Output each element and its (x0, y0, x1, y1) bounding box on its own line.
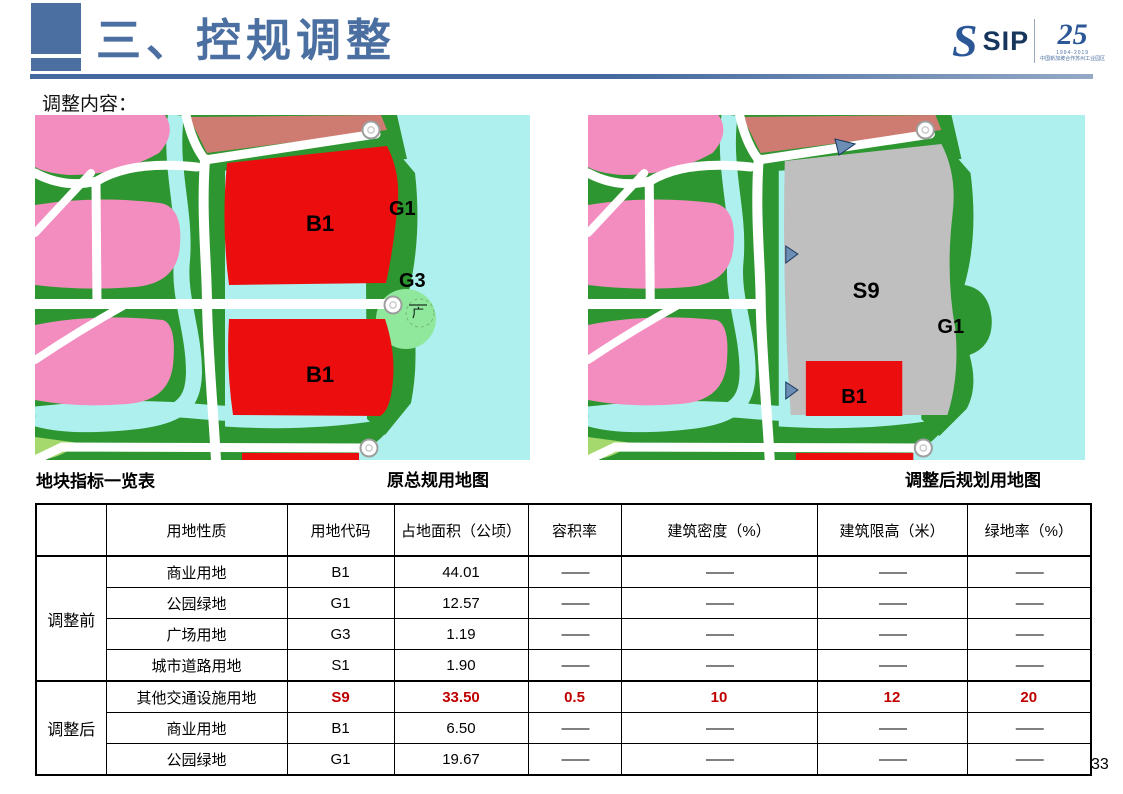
residential-parcel (35, 317, 174, 405)
header-far: 容积率 (528, 504, 621, 556)
table-row: 公园绿地 G1 19.67 —— —— —— —— (36, 744, 1091, 776)
table-row: 调整前 商业用地 B1 44.01 —— —— —— —— (36, 556, 1091, 588)
cell: —— (528, 588, 621, 619)
cell-highlight: 20 (967, 681, 1091, 713)
header-density: 建筑密度（%） (621, 504, 817, 556)
page-title: 三、控规调整 (96, 4, 396, 69)
cell: S1 (287, 650, 394, 682)
cell: —— (817, 588, 967, 619)
label-b1-small: B1 (841, 386, 867, 408)
label-s9: S9 (853, 278, 880, 303)
cell: 商业用地 (106, 556, 287, 588)
cell-highlight: 12 (817, 681, 967, 713)
label-g1: G1 (937, 316, 964, 338)
header-divider (30, 74, 1093, 79)
title-decoration-square (31, 3, 81, 54)
red-sliver-parcel (242, 453, 359, 460)
table-row: 调整后 其他交通设施用地 S9 33.50 0.5 10 12 20 (36, 681, 1091, 713)
cell: —— (621, 588, 817, 619)
cell: 公园绿地 (106, 588, 287, 619)
map-after-caption: 调整后规划用地图 (905, 466, 1041, 491)
logo-divider (1034, 19, 1035, 63)
cell: —— (621, 556, 817, 588)
cell: 公园绿地 (106, 744, 287, 776)
group-label-before: 调整前 (36, 556, 106, 681)
cell: B1 (287, 713, 394, 744)
cell: 广场用地 (106, 619, 287, 650)
cell: 1.19 (394, 619, 528, 650)
roundabout-icon (915, 440, 932, 457)
roundabout-icon (363, 122, 380, 139)
cell: —— (967, 650, 1091, 682)
cell: —— (528, 713, 621, 744)
cell: —— (621, 619, 817, 650)
cell-highlight: 0.5 (528, 681, 621, 713)
map-before-caption: 原总规用地图 (387, 466, 489, 491)
roundabout-icon (385, 297, 402, 314)
header-area: 占地面积（公顷） (394, 504, 528, 556)
cell: —— (817, 744, 967, 776)
cell: —— (817, 556, 967, 588)
table-title: 地块指标一览表 (36, 467, 155, 492)
anniversary-logo: 25 1994-2019 中国新加坡合作苏州工业园区 (1040, 20, 1105, 62)
group-label-after: 调整后 (36, 681, 106, 775)
page-number: 33 (1091, 756, 1109, 774)
sip-logo-text: SIP (983, 26, 1030, 57)
cell-highlight: S9 (287, 681, 394, 713)
title-decoration-bar (31, 58, 81, 71)
cell: 商业用地 (106, 713, 287, 744)
slide: 三、控规调整 S SIP 25 1994-2019 中国新加坡合作苏州工业园区 … (0, 0, 1123, 794)
cell: —— (621, 713, 817, 744)
anniversary-25-icon: 25 (1058, 20, 1088, 50)
cell: —— (967, 744, 1091, 776)
red-sliver-parcel (796, 453, 913, 460)
cell-highlight: 10 (621, 681, 817, 713)
header-height-limit: 建筑限高（米） (817, 504, 967, 556)
table-row: 商业用地 B1 6.50 —— —— —— —— (36, 713, 1091, 744)
cell: —— (967, 619, 1091, 650)
cell: 其他交通设施用地 (106, 681, 287, 713)
cell: 6.50 (394, 713, 528, 744)
cell: —— (528, 619, 621, 650)
label-b1-top: B1 (306, 211, 334, 236)
cell: G3 (287, 619, 394, 650)
cell: —— (528, 556, 621, 588)
cell: 12.57 (394, 588, 528, 619)
parcel-indicator-table: 用地性质 用地代码 占地面积（公顷） 容积率 建筑密度（%） 建筑限高（米） 绿… (35, 503, 1092, 776)
label-g1: G1 (389, 198, 416, 220)
cell: 44.01 (394, 556, 528, 588)
cell: —— (817, 713, 967, 744)
label-plaza: 广 (412, 306, 424, 320)
cell: 1.90 (394, 650, 528, 682)
cell: —— (621, 650, 817, 682)
cell: —— (528, 650, 621, 682)
header-land-use: 用地性质 (106, 504, 287, 556)
cell: B1 (287, 556, 394, 588)
cell: —— (967, 713, 1091, 744)
cell: 19.67 (394, 744, 528, 776)
header-blank (36, 504, 106, 556)
land-use-map-before: B1 G1 G3 广 B1 (35, 115, 530, 460)
cell: —— (967, 588, 1091, 619)
table-row: 广场用地 G3 1.19 —— —— —— —— (36, 619, 1091, 650)
table-header-row: 用地性质 用地代码 占地面积（公顷） 容积率 建筑密度（%） 建筑限高（米） 绿… (36, 504, 1091, 556)
cell: G1 (287, 744, 394, 776)
table-row: 公园绿地 G1 12.57 —— —— —— —— (36, 588, 1091, 619)
header-land-code: 用地代码 (287, 504, 394, 556)
anniversary-caption: 中国新加坡合作苏州工业园区 (1040, 57, 1105, 62)
sip-logo-swoosh-icon: S (952, 20, 978, 61)
map-before-svg: B1 G1 G3 广 B1 (35, 115, 530, 460)
cell: —— (817, 619, 967, 650)
roundabout-icon (917, 122, 934, 139)
cell: —— (528, 744, 621, 776)
cell: G1 (287, 588, 394, 619)
sip-logo: S SIP 25 1994-2019 中国新加坡合作苏州工业园区 (952, 12, 1117, 70)
section-intro-label: 调整内容： (42, 89, 137, 116)
label-g3: G3 (399, 270, 426, 292)
header-green-rate: 绿地率（%） (967, 504, 1091, 556)
land-use-map-after: S9 G1 B1 (588, 115, 1085, 460)
cell: —— (967, 556, 1091, 588)
cell: —— (621, 744, 817, 776)
cell: 城市道路用地 (106, 650, 287, 682)
cell: —— (817, 650, 967, 682)
table-row: 城市道路用地 S1 1.90 —— —— —— —— (36, 650, 1091, 682)
cell-highlight: 33.50 (394, 681, 528, 713)
residential-parcel (588, 317, 727, 405)
label-b1-bottom: B1 (306, 362, 334, 387)
roundabout-icon (361, 440, 378, 457)
map-after-svg: S9 G1 B1 (588, 115, 1085, 460)
